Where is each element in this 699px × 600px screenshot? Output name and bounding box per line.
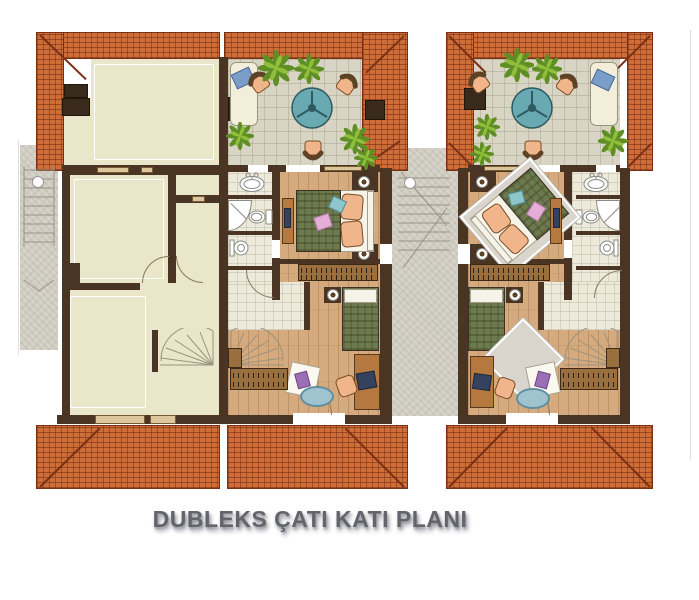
plant-icon bbox=[500, 48, 534, 82]
wall-segment bbox=[538, 282, 544, 330]
plant-icon bbox=[294, 54, 324, 84]
door-opening bbox=[248, 165, 268, 172]
roof-slab bbox=[228, 426, 407, 488]
door-opening bbox=[272, 240, 280, 258]
chimney bbox=[365, 100, 385, 120]
wall-segment bbox=[228, 231, 272, 235]
hanger-rail bbox=[563, 382, 615, 387]
hanger-rail bbox=[563, 373, 615, 378]
hanger-rail bbox=[301, 268, 375, 273]
hanger-rail bbox=[473, 275, 547, 280]
plot-boundary-line bbox=[690, 30, 691, 460]
wall-segment bbox=[576, 195, 620, 199]
wall-segment bbox=[228, 195, 272, 199]
rug-icon bbox=[516, 388, 550, 409]
pedestal-sink-icon bbox=[229, 239, 249, 257]
plant-icon bbox=[474, 114, 500, 140]
room-outline bbox=[70, 296, 146, 408]
door-opening bbox=[564, 240, 572, 258]
plant-icon bbox=[598, 126, 628, 156]
wall-segment bbox=[168, 175, 176, 283]
hanger-rail bbox=[233, 373, 285, 378]
vanity-sink-icon bbox=[238, 172, 266, 194]
column-icon bbox=[32, 176, 44, 188]
door-opening bbox=[596, 165, 616, 172]
window bbox=[97, 167, 129, 173]
bed-headboard bbox=[367, 191, 374, 251]
chimney bbox=[64, 84, 88, 98]
room-outline bbox=[94, 64, 214, 160]
pillow bbox=[470, 289, 503, 303]
laptop-icon bbox=[472, 373, 492, 391]
roof-slab bbox=[37, 33, 219, 58]
wardrobe-icon bbox=[298, 264, 378, 281]
hanger-rail bbox=[473, 268, 547, 273]
party-wall bbox=[219, 57, 228, 418]
chimney bbox=[62, 98, 90, 116]
wall-segment bbox=[576, 231, 620, 235]
wardrobe-icon bbox=[560, 368, 618, 390]
wall-segment bbox=[62, 172, 70, 418]
tv bbox=[284, 208, 291, 228]
vanity-sink-icon bbox=[582, 172, 610, 194]
shelf-unit bbox=[228, 348, 242, 368]
window bbox=[95, 415, 145, 424]
plant-icon bbox=[470, 142, 494, 166]
pillow bbox=[340, 220, 364, 248]
wall-segment bbox=[304, 282, 310, 330]
table-icon bbox=[290, 86, 334, 130]
wardrobe-icon bbox=[230, 368, 288, 390]
stair-arrow-icon bbox=[22, 278, 56, 294]
toilet-icon bbox=[247, 209, 273, 225]
hanger-rail bbox=[301, 275, 375, 280]
hanger-rail bbox=[233, 382, 285, 387]
rug-icon bbox=[300, 386, 334, 407]
pillow bbox=[344, 289, 377, 303]
spiral-stair-icon bbox=[158, 328, 216, 368]
shower-line bbox=[599, 203, 620, 228]
door-opening bbox=[286, 165, 320, 172]
table-icon bbox=[510, 86, 554, 130]
door-opening bbox=[458, 244, 470, 264]
shelf-unit bbox=[606, 348, 620, 368]
wall-segment bbox=[576, 266, 620, 270]
wardrobe-icon bbox=[470, 264, 550, 281]
window bbox=[192, 196, 205, 202]
wall-segment bbox=[62, 263, 80, 285]
pedestal-sink-icon bbox=[599, 239, 619, 257]
door-opening bbox=[380, 244, 392, 264]
roof-slab bbox=[37, 426, 219, 488]
floor-plan-canvas: DUBLEKS ÇATI KATI PLANI bbox=[0, 0, 699, 600]
tv bbox=[553, 208, 560, 228]
chair-icon bbox=[302, 138, 324, 162]
column-icon bbox=[404, 177, 416, 189]
plan-title: DUBLEKS ÇATI KATI PLANI bbox=[0, 506, 620, 533]
lamp-icon bbox=[509, 289, 521, 301]
window bbox=[150, 415, 176, 424]
plot-boundary-line bbox=[18, 140, 19, 355]
wall-segment bbox=[380, 168, 392, 418]
plant-icon bbox=[532, 54, 562, 84]
plant-icon bbox=[226, 122, 254, 150]
laptop-icon bbox=[356, 370, 378, 390]
lamp-icon bbox=[358, 176, 370, 188]
plant-icon bbox=[354, 146, 378, 170]
plant-icon bbox=[258, 50, 294, 86]
window bbox=[141, 167, 153, 173]
lamp-icon bbox=[327, 289, 339, 301]
